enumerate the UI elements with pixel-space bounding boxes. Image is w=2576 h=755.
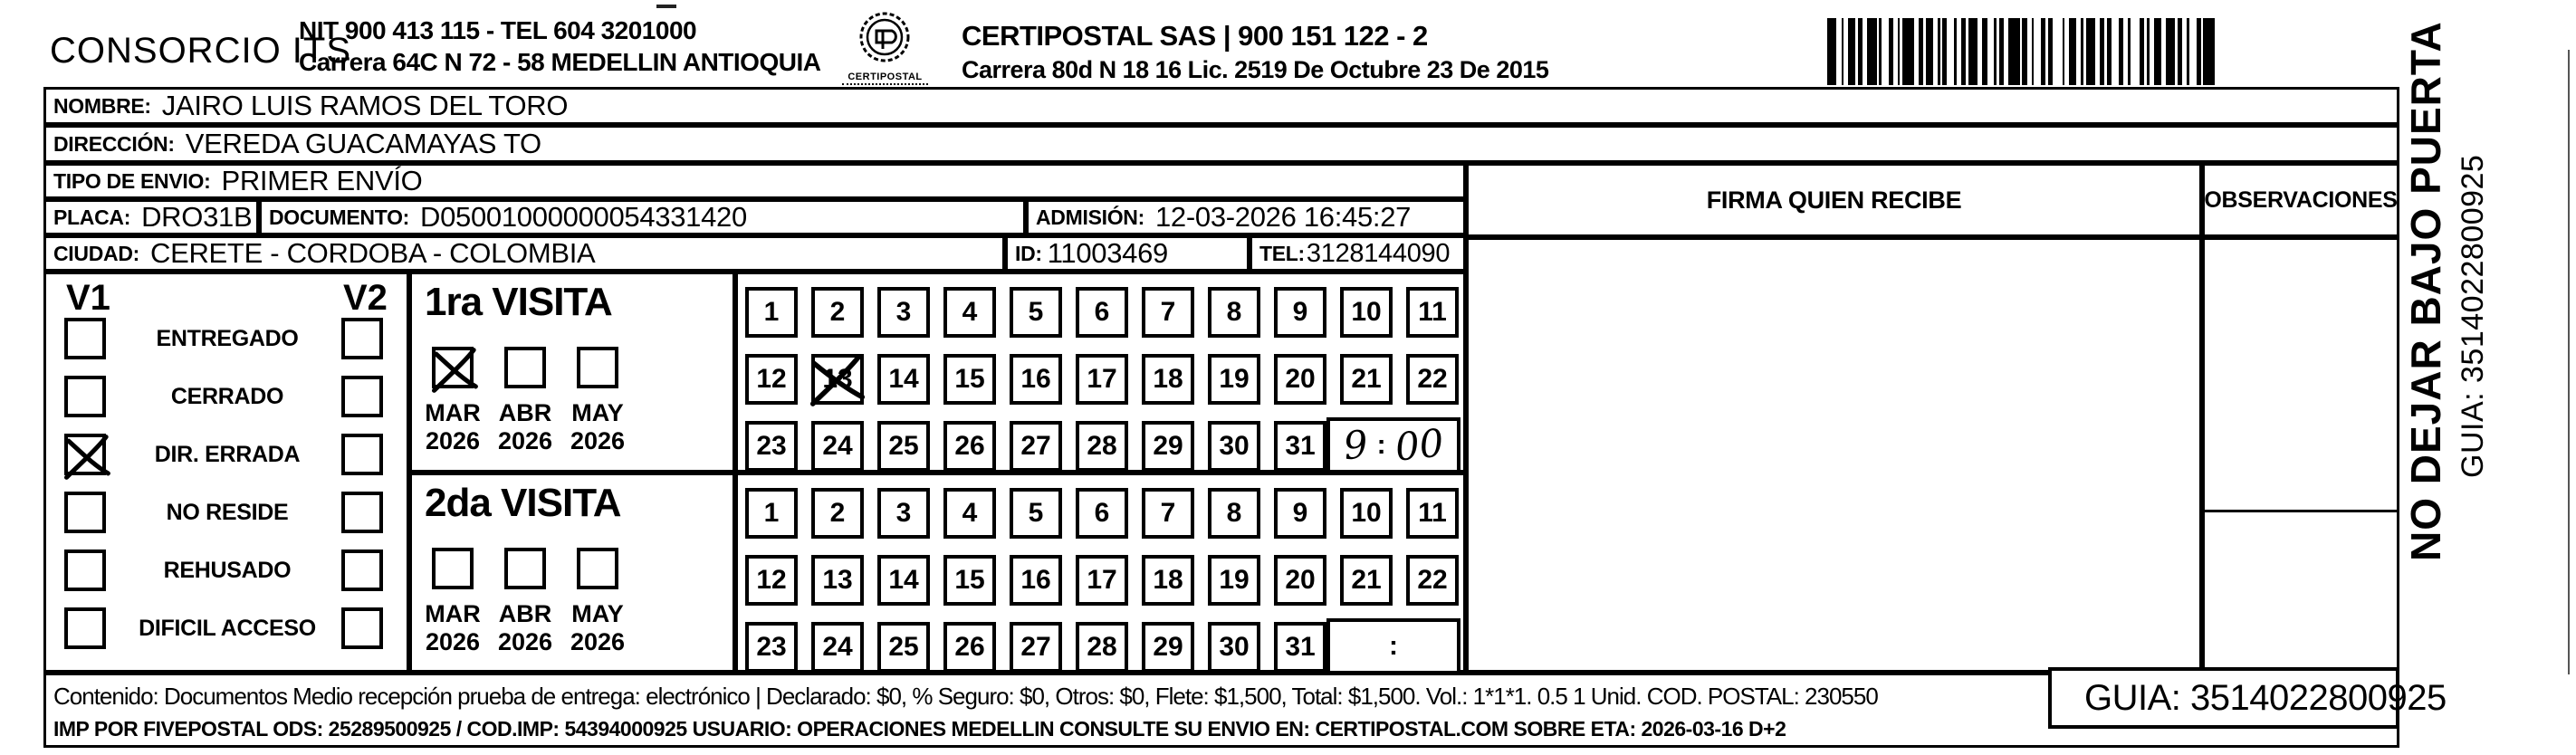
month-year: 2026 xyxy=(493,427,557,455)
day-cell[interactable]: 6 xyxy=(1076,287,1128,338)
day-number: 2 xyxy=(830,297,846,328)
month-year: 2026 xyxy=(421,628,484,656)
day-number: 25 xyxy=(888,431,918,462)
guia-side-text: GUIA: 3514022800925 xyxy=(2456,156,2495,478)
day-cell[interactable]: 13 xyxy=(811,555,864,606)
certipostal-logo: CERTIPOSTAL xyxy=(842,9,928,85)
day-cell[interactable]: 21 xyxy=(1340,354,1393,405)
day-cell[interactable]: 9 xyxy=(1274,287,1326,338)
documento-label: DOCUMENTO: xyxy=(269,205,409,230)
day-number: 28 xyxy=(1087,431,1116,462)
day-cell[interactable]: 1 xyxy=(745,287,798,338)
day-number: 13 xyxy=(822,565,852,596)
day-cell[interactable]: 14 xyxy=(877,555,930,606)
day-number: 18 xyxy=(1153,364,1183,395)
postal-delivery-form: CONSORCIO ITS NIT 900 413 115 - TEL 604 … xyxy=(0,0,2576,755)
v1-checkbox[interactable] xyxy=(64,376,106,417)
footer-row: Contenido: Documentos Medio recepción pr… xyxy=(43,673,2399,748)
day-cell[interactable]: 20 xyxy=(1274,555,1326,606)
day-number: 21 xyxy=(1351,565,1381,596)
day-number: 22 xyxy=(1417,565,1447,596)
field-id: ID: 11003469 xyxy=(1005,235,1250,272)
month-year: 2026 xyxy=(566,628,629,656)
time-colon: : xyxy=(1389,631,1398,662)
day-cell[interactable]: 29 xyxy=(1142,622,1194,673)
nombre-label: NOMBRE: xyxy=(53,94,151,119)
day-cell[interactable]: 8 xyxy=(1208,488,1260,539)
day-cell[interactable]: 25 xyxy=(877,622,930,673)
day-number: 5 xyxy=(1029,498,1044,529)
day-number: 16 xyxy=(1020,364,1050,395)
visit-status-panel: V1 V2 ENTREGADO CERRADO xyxy=(43,272,409,673)
month-label: MAR xyxy=(421,600,484,628)
day-number: 7 xyxy=(1161,297,1176,328)
placa-value: DRO31B xyxy=(141,201,252,234)
status-row: DIFICIL ACCESO xyxy=(46,607,407,649)
day-number: 29 xyxy=(1153,632,1183,663)
day-cell[interactable]: 24 xyxy=(811,421,864,472)
v1-checkbox[interactable] xyxy=(64,607,106,649)
day-cell[interactable]: 12 xyxy=(745,555,798,606)
day-number: 8 xyxy=(1227,297,1242,328)
day-number: 16 xyxy=(1020,565,1050,596)
time-hour-handwritten: 9 xyxy=(1342,425,1370,466)
day-cell[interactable]: 3 xyxy=(877,488,930,539)
day-cell[interactable]: 14 xyxy=(877,354,930,405)
observaciones-divider xyxy=(2202,510,2399,512)
direccion-value: VEREDA GUACAMAYAS TO xyxy=(186,128,541,160)
v2-checkbox[interactable] xyxy=(341,607,383,649)
day-cell[interactable]: 20 xyxy=(1274,354,1326,405)
observaciones-header: OBSERVACIONES xyxy=(2204,187,2397,214)
day-number: 9 xyxy=(1293,297,1308,328)
day-number: 19 xyxy=(1219,364,1249,395)
month-year: 2026 xyxy=(493,628,557,656)
field-admision: ADMISIÓN: 12-03-2026 16:45:27 xyxy=(1026,199,1466,235)
day-cell[interactable]: 30 xyxy=(1208,421,1260,472)
field-documento: DOCUMENTO: D05001000000054331420 xyxy=(259,199,1026,235)
day-number: 10 xyxy=(1351,297,1381,328)
day-number: 17 xyxy=(1087,364,1116,395)
field-nombre: NOMBRE: JAIRO LUIS RAMOS DEL TORO xyxy=(43,87,2399,125)
day-number: 12 xyxy=(756,364,786,395)
month-checkbox[interactable] xyxy=(577,347,618,388)
day-cell[interactable]: 22 xyxy=(1406,555,1459,606)
day-number: 30 xyxy=(1219,632,1249,663)
day-number: 26 xyxy=(954,431,984,462)
day-number: 23 xyxy=(756,431,786,462)
observaciones-area xyxy=(2202,237,2399,673)
second-visit-title: 2da VISITA xyxy=(425,481,621,526)
day-cell[interactable]: 27 xyxy=(1010,622,1062,673)
day-cell[interactable]: 22 xyxy=(1406,354,1459,405)
month-label: MAY xyxy=(566,600,629,628)
day-cell[interactable]: 7 xyxy=(1142,287,1194,338)
day-cell[interactable]: 10 xyxy=(1340,488,1393,539)
month-option: MAY 2026 xyxy=(566,347,629,455)
month-checkbox[interactable] xyxy=(504,548,546,589)
day-cell[interactable]: 3 xyxy=(877,287,930,338)
day-cell[interactable]: 19 xyxy=(1208,354,1260,405)
day-cell[interactable]: 26 xyxy=(943,421,996,472)
company-info-line2: Carrera 64C N 72 - 58 MEDELLIN ANTIOQUIA xyxy=(299,46,820,78)
day-number: 31 xyxy=(1285,431,1315,462)
x-mark-icon xyxy=(428,345,483,396)
day-number: 11 xyxy=(1418,297,1447,328)
day-number: 23 xyxy=(756,632,786,663)
day-cell[interactable]: 18 xyxy=(1142,354,1194,405)
status-row: REHUSADO xyxy=(46,550,407,591)
firma-signature-area xyxy=(1466,237,2202,673)
month-checkbox[interactable] xyxy=(504,347,546,388)
day-number: 14 xyxy=(888,565,918,596)
scan-artifact-dash xyxy=(656,5,676,8)
time-minutes-handwritten: 00 xyxy=(1393,424,1446,466)
day-cell[interactable]: 11 xyxy=(1406,488,1459,539)
status-row: CERRADO xyxy=(46,376,407,417)
direccion-label: DIRECCIÓN: xyxy=(53,132,175,157)
day-number: 25 xyxy=(888,632,918,663)
v2-checkbox[interactable] xyxy=(341,318,383,359)
status-label: CERRADO xyxy=(110,376,345,417)
day-number: 15 xyxy=(954,364,984,395)
day-number: 17 xyxy=(1087,565,1116,596)
day-cell[interactable]: 29 xyxy=(1142,421,1194,472)
month-year: 2026 xyxy=(421,427,484,455)
month-checkbox[interactable] xyxy=(432,347,474,388)
v2-checkbox[interactable] xyxy=(341,434,383,475)
month-option: MAR 2026 xyxy=(421,347,484,455)
status-label: NO RESIDE xyxy=(110,492,345,533)
day-number: 13 xyxy=(822,364,852,395)
guia-box: GUIA: 3514022800925 xyxy=(2048,667,2399,729)
day-number: 14 xyxy=(888,364,918,395)
no-dejar-bajo-puerta-text: NO DEJAR BAJO PUERTA xyxy=(2401,109,2454,561)
day-cell[interactable]: 12 xyxy=(745,354,798,405)
v1-checkbox[interactable] xyxy=(64,550,106,591)
v1-checkbox[interactable] xyxy=(64,318,106,359)
day-cell[interactable]: 5 xyxy=(1010,287,1062,338)
month-option: ABR 2026 xyxy=(493,548,557,656)
status-label: DIFICIL ACCESO xyxy=(110,607,345,649)
logo-caption: CERTIPOSTAL xyxy=(842,72,928,85)
day-number: 5 xyxy=(1029,297,1044,328)
day-number: 20 xyxy=(1285,364,1315,395)
field-tel: TEL: 3128144090 xyxy=(1250,235,1466,272)
day-cell[interactable]: 23 xyxy=(745,421,798,472)
status-label: ENTREGADO xyxy=(110,318,345,359)
id-value: 11003469 xyxy=(1048,237,1168,270)
day-cell[interactable]: 21 xyxy=(1340,555,1393,606)
footer-system-line: IMP POR FIVEPOSTAL ODS: 25289500925 / CO… xyxy=(53,717,1786,741)
day-cell[interactable]: 31 xyxy=(1274,622,1326,673)
first-visit-month-panel: 1ra VISITA MAR 2026 ABR 2026 MAY 2026 xyxy=(409,272,735,473)
scan-edge-line xyxy=(2568,50,2570,674)
v2-checkbox[interactable] xyxy=(341,492,383,533)
day-number: 26 xyxy=(954,632,984,663)
day-cell[interactable]: 15 xyxy=(943,555,996,606)
field-tipo-envio: TIPO DE ENVIO: PRIMER ENVÍO xyxy=(43,163,1466,199)
day-cell[interactable]: 2 xyxy=(811,488,864,539)
status-row: ENTREGADO xyxy=(46,318,407,359)
tel-label: TEL: xyxy=(1259,242,1305,266)
nombre-value: JAIRO LUIS RAMOS DEL TORO xyxy=(162,90,568,122)
second-visit-month-panel: 2da VISITA MAR 2026 ABR 2026 MAY 2026 xyxy=(409,473,735,673)
ciudad-value: CERETE - CORDOBA - COLOMBIA xyxy=(150,237,595,270)
day-cell[interactable]: 17 xyxy=(1076,555,1128,606)
day-number: 9 xyxy=(1293,498,1308,529)
day-number: 3 xyxy=(896,297,912,328)
v1-checkbox[interactable] xyxy=(64,434,106,475)
day-number: 1 xyxy=(764,297,780,328)
day-number: 10 xyxy=(1351,498,1381,529)
day-number: 4 xyxy=(962,297,978,328)
tipo-envio-label: TIPO DE ENVIO: xyxy=(53,169,210,194)
time-box[interactable]: : xyxy=(1326,618,1460,674)
day-cell[interactable]: 23 xyxy=(745,622,798,673)
field-direccion: DIRECCIÓN: VEREDA GUACAMAYAS TO xyxy=(43,125,2399,163)
operator-info: Carrera 80d N 18 16 Lic. 2519 De Octubre… xyxy=(962,56,1548,84)
day-number: 4 xyxy=(962,498,978,529)
month-year: 2026 xyxy=(566,427,629,455)
day-cell[interactable]: 1 xyxy=(745,488,798,539)
day-cell[interactable]: 11 xyxy=(1406,287,1459,338)
day-cell[interactable]: 9 xyxy=(1274,488,1326,539)
firma-header-box: FIRMA QUIEN RECIBE xyxy=(1466,163,2202,237)
day-cell[interactable]: 19 xyxy=(1208,555,1260,606)
ciudad-label: CIUDAD: xyxy=(53,242,139,266)
month-option: ABR 2026 xyxy=(493,347,557,455)
day-cell[interactable]: 7 xyxy=(1142,488,1194,539)
day-cell[interactable]: 17 xyxy=(1076,354,1128,405)
day-number: 22 xyxy=(1417,364,1447,395)
day-number: 27 xyxy=(1020,431,1050,462)
day-number: 18 xyxy=(1153,565,1183,596)
footer-content-line: Contenido: Documentos Medio recepción pr… xyxy=(53,683,1878,711)
day-cell[interactable]: 28 xyxy=(1076,421,1128,472)
month-option: MAR 2026 xyxy=(421,548,484,656)
id-label: ID: xyxy=(1015,242,1042,266)
admision-label: ADMISIÓN: xyxy=(1036,205,1144,230)
day-number: 27 xyxy=(1020,632,1050,663)
day-cell[interactable]: 31 xyxy=(1274,421,1326,472)
day-number: 8 xyxy=(1227,498,1242,529)
day-number: 2 xyxy=(830,498,846,529)
documento-value: D05001000000054331420 xyxy=(420,201,747,234)
month-label: ABR xyxy=(493,399,557,427)
day-number: 20 xyxy=(1285,565,1315,596)
day-cell[interactable]: 30 xyxy=(1208,622,1260,673)
certipostal-stamp-icon xyxy=(842,9,928,69)
tel-value: 3128144090 xyxy=(1307,239,1450,269)
day-number: 1 xyxy=(764,498,780,529)
field-ciudad: CIUDAD: CERETE - CORDOBA - COLOMBIA xyxy=(43,235,1005,272)
day-cell[interactable]: 27 xyxy=(1010,421,1062,472)
day-number: 31 xyxy=(1285,632,1315,663)
barcode xyxy=(1827,18,2220,85)
day-number: 29 xyxy=(1153,431,1183,462)
day-number: 3 xyxy=(896,498,912,529)
admision-value: 12-03-2026 16:45:27 xyxy=(1155,201,1411,234)
day-cell[interactable]: 26 xyxy=(943,622,996,673)
status-label: REHUSADO xyxy=(110,550,345,591)
day-number: 11 xyxy=(1418,498,1447,529)
day-cell[interactable]: 15 xyxy=(943,354,996,405)
day-number: 6 xyxy=(1095,297,1110,328)
month-label: MAR xyxy=(421,399,484,427)
company-info: NIT 900 413 115 - TEL 604 3201000 Carrer… xyxy=(299,14,820,78)
day-number: 30 xyxy=(1219,431,1249,462)
first-visit-title: 1ra VISITA xyxy=(425,280,612,325)
second-visit-day-grid: 1 2 3 4 5 6 7 8 xyxy=(735,473,1466,673)
day-number: 15 xyxy=(954,565,984,596)
day-cell[interactable]: 10 xyxy=(1340,287,1393,338)
day-number: 19 xyxy=(1219,565,1249,596)
day-cell[interactable]: 4 xyxy=(943,287,996,338)
day-cell[interactable]: 13 xyxy=(811,354,864,405)
day-cell[interactable]: 18 xyxy=(1142,555,1194,606)
day-cell[interactable]: 24 xyxy=(811,622,864,673)
day-number: 7 xyxy=(1161,498,1176,529)
status-row: NO RESIDE xyxy=(46,492,407,533)
day-number: 21 xyxy=(1351,364,1381,395)
day-cell[interactable]: 2 xyxy=(811,287,864,338)
day-number: 6 xyxy=(1095,498,1110,529)
v1-checkbox[interactable] xyxy=(64,492,106,533)
month-checkbox[interactable] xyxy=(577,548,618,589)
v2-column-header: V2 xyxy=(343,278,388,319)
v2-checkbox[interactable] xyxy=(341,376,383,417)
v1-column-header: V1 xyxy=(66,278,110,319)
guia-number: GUIA: 3514022800925 xyxy=(2084,678,2447,719)
time-box[interactable]: 9 : 00 xyxy=(1326,417,1460,473)
month-label: ABR xyxy=(493,600,557,628)
status-row: DIR. ERRADA xyxy=(46,434,407,475)
day-number: 24 xyxy=(822,431,852,462)
day-number: 24 xyxy=(822,632,852,663)
day-cell[interactable]: 6 xyxy=(1076,488,1128,539)
day-cell[interactable]: 5 xyxy=(1010,488,1062,539)
time-colon: : xyxy=(1377,430,1386,461)
firma-header: FIRMA QUIEN RECIBE xyxy=(1707,186,1962,215)
x-mark-icon xyxy=(61,432,115,483)
field-placa: PLACA: DRO31B xyxy=(43,199,259,235)
day-cell[interactable]: 16 xyxy=(1010,354,1062,405)
tipo-envio-value: PRIMER ENVÍO xyxy=(221,165,422,197)
v2-checkbox[interactable] xyxy=(341,550,383,591)
month-checkbox[interactable] xyxy=(432,548,474,589)
day-cell[interactable]: 16 xyxy=(1010,555,1062,606)
first-visit-day-grid: 1 2 3 4 5 6 7 8 xyxy=(735,272,1466,473)
company-info-line1: NIT 900 413 115 - TEL 604 3201000 xyxy=(299,14,820,46)
month-option: MAY 2026 xyxy=(566,548,629,656)
day-number: 12 xyxy=(756,565,786,596)
day-number: 28 xyxy=(1087,632,1116,663)
day-cell[interactable]: 8 xyxy=(1208,287,1260,338)
placa-label: PLACA: xyxy=(53,205,130,230)
day-cell[interactable]: 25 xyxy=(877,421,930,472)
observaciones-header-box: OBSERVACIONES xyxy=(2202,163,2399,237)
day-cell[interactable]: 4 xyxy=(943,488,996,539)
status-label: DIR. ERRADA xyxy=(110,434,345,475)
operator-name: CERTIPOSTAL SAS | 900 151 122 - 2 xyxy=(962,20,1428,53)
day-cell[interactable]: 28 xyxy=(1076,622,1128,673)
month-label: MAY xyxy=(566,399,629,427)
